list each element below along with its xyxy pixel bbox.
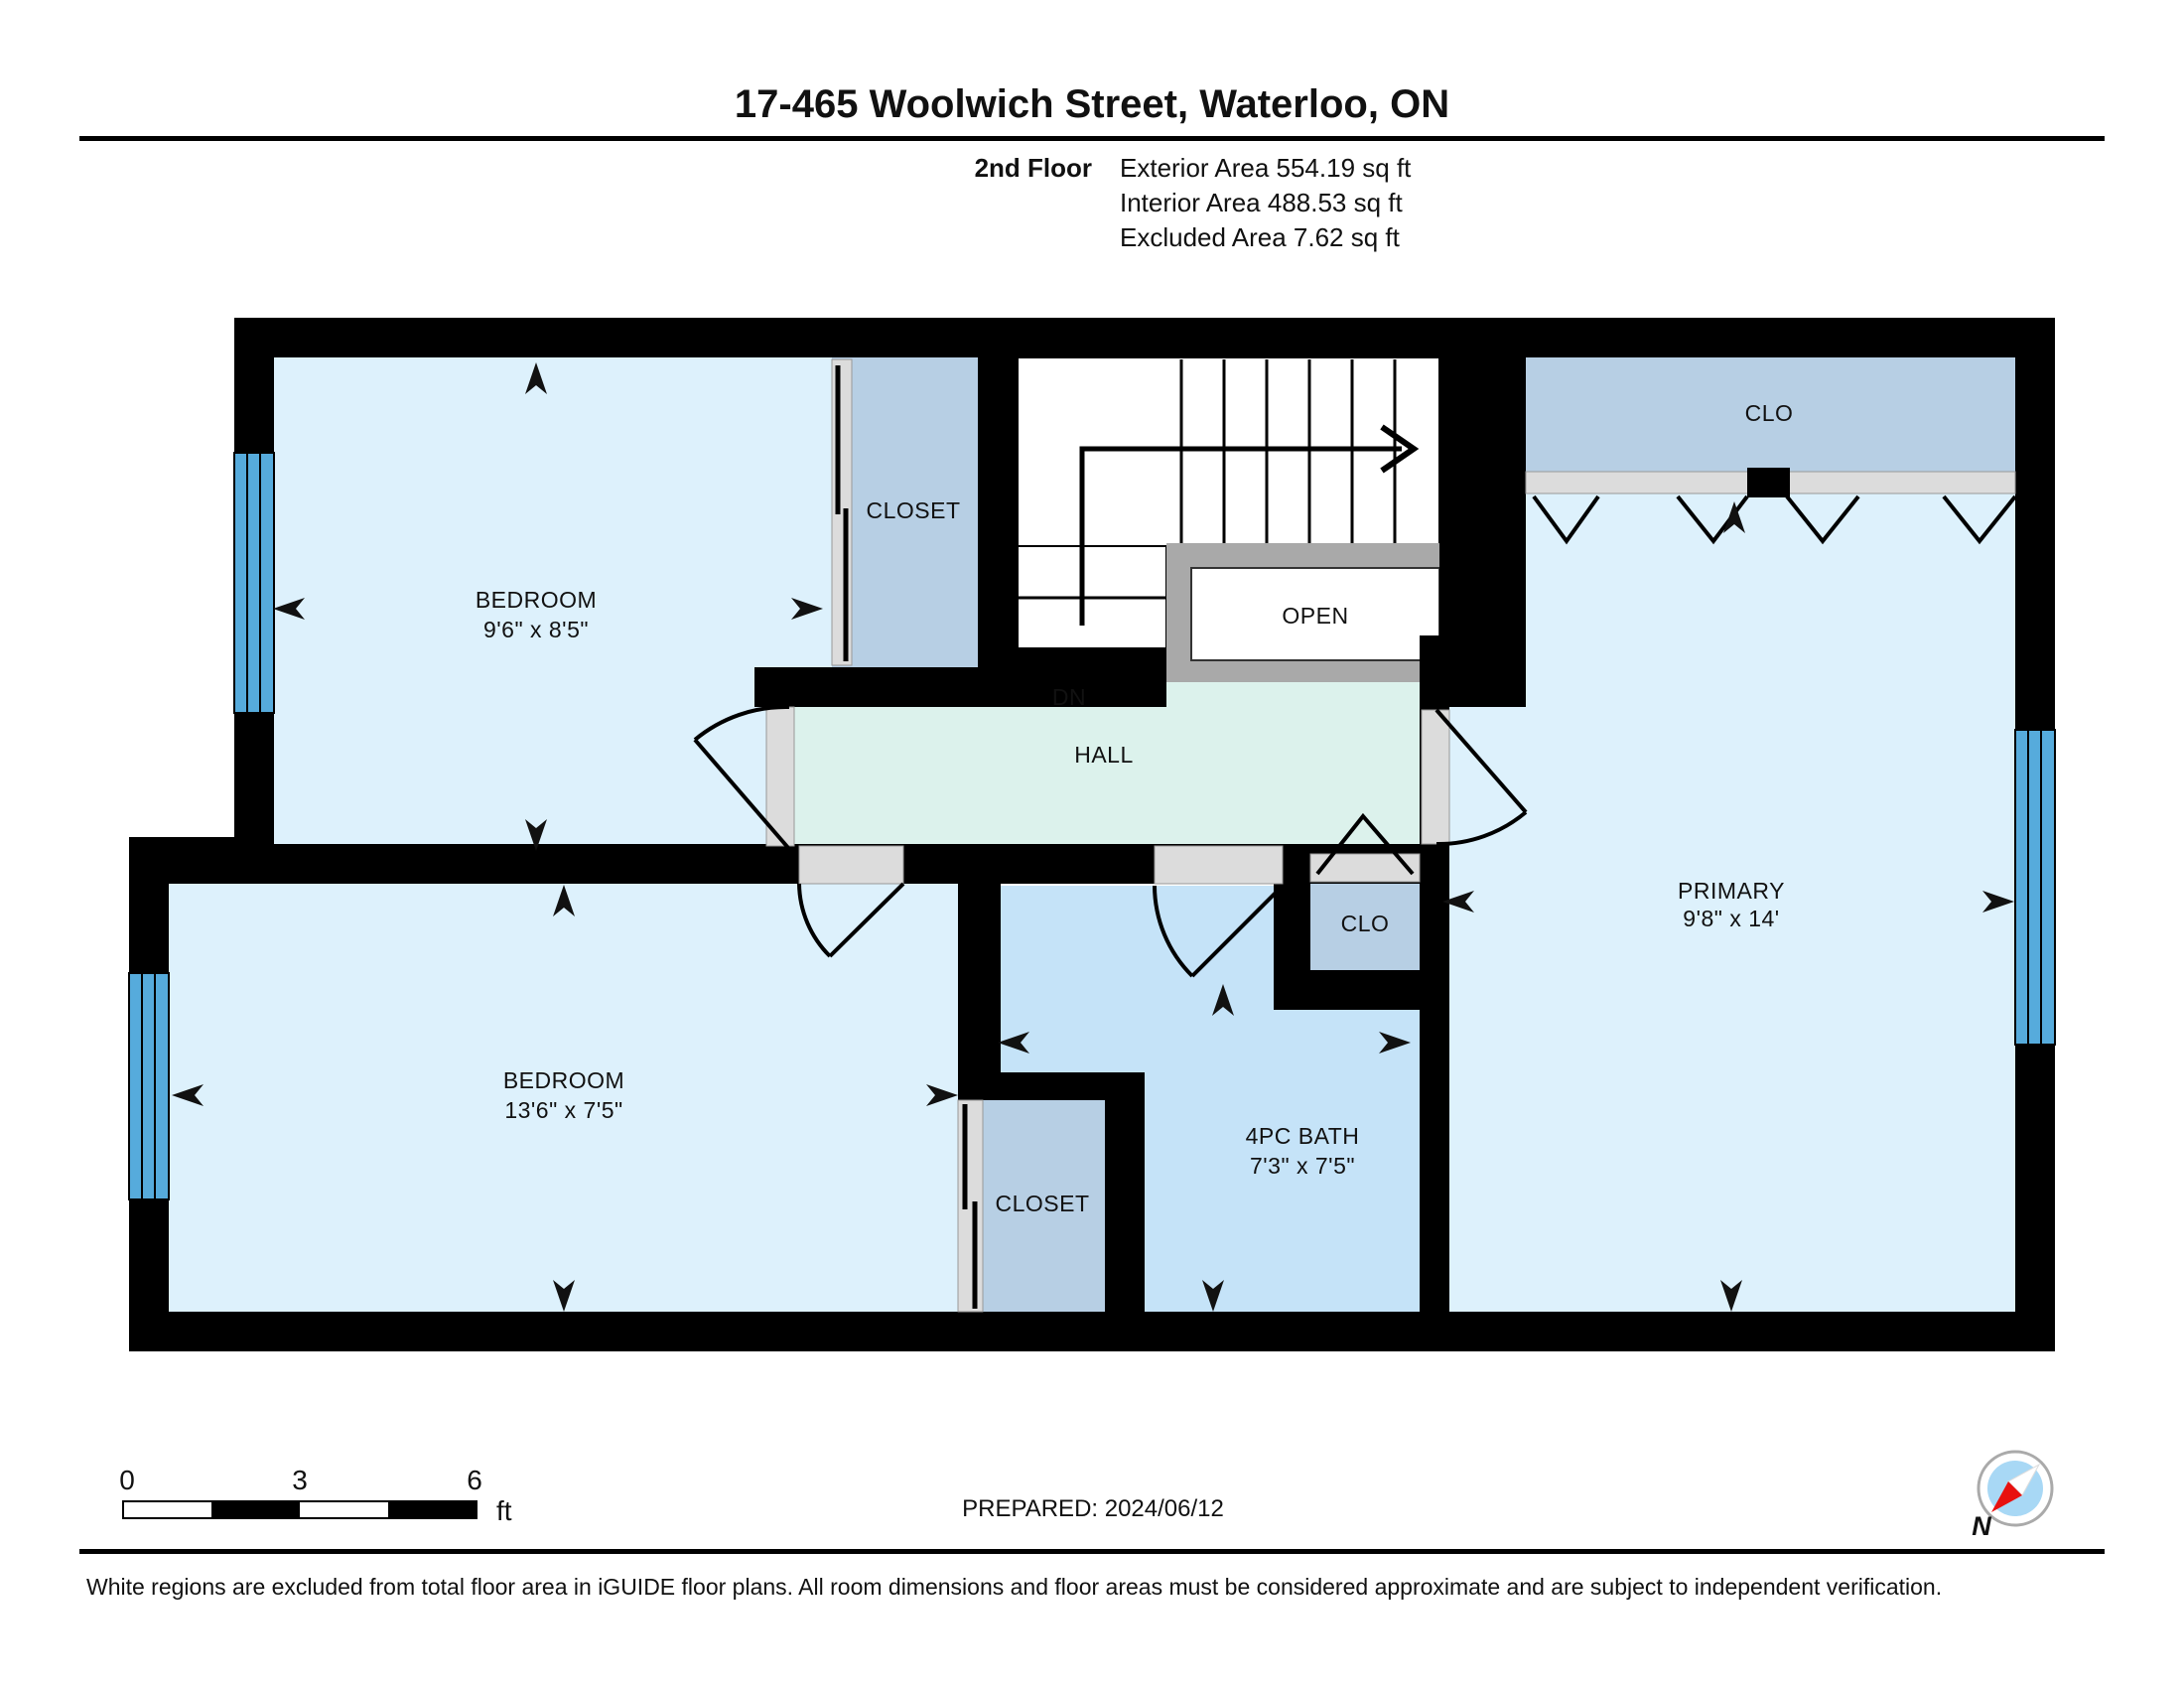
clo-divider-post — [1747, 468, 1790, 497]
closet-top-label: CLOSET — [866, 497, 960, 523]
clo-top-right-label: CLO — [1745, 400, 1794, 426]
bedroom-2-label: BEDROOM — [503, 1067, 624, 1093]
compass-north-label: N — [1972, 1511, 1991, 1541]
footer: 0 3 6 ft PREPARED: 2024/06/12 N White re… — [79, 1452, 2105, 1600]
floor-label: 2nd Floor — [975, 153, 1092, 183]
clo-small-label: CLO — [1341, 911, 1390, 936]
open-label: OPEN — [1282, 603, 1348, 629]
scale-tick-0: 0 — [119, 1465, 135, 1495]
sliding-door-closet-bottom-icon — [958, 1100, 983, 1312]
disclaimer-text: White regions are excluded from total fl… — [86, 1574, 1942, 1600]
scale-bar: 0 3 6 ft — [119, 1465, 512, 1526]
scale-bar-seg-1 — [211, 1501, 300, 1518]
primary-dims: 9'8" x 14' — [1683, 906, 1779, 931]
bath-dims: 7'3" x 7'5" — [1250, 1153, 1355, 1179]
compass-icon: N — [1972, 1452, 2052, 1541]
header: 17-465 Woolwich Street, Waterloo, ON 2nd… — [79, 82, 2105, 252]
window-primary-icon — [2015, 730, 2055, 1045]
scale-tick-6: 6 — [467, 1465, 482, 1495]
window-bedroom-2-icon — [129, 973, 169, 1199]
stairs-down-label: DN — [1052, 684, 1086, 710]
hall-label: HALL — [1074, 742, 1134, 768]
opening-bath — [1155, 846, 1283, 884]
interior-area: Interior Area 488.53 sq ft — [1120, 188, 1404, 217]
opening-primary — [1422, 710, 1449, 844]
bedroom-1-dims: 9'6" x 8'5" — [483, 617, 589, 642]
bath-label: 4PC BATH — [1246, 1123, 1360, 1149]
opening-clo-small — [1310, 854, 1420, 882]
sliding-door-closet-top-icon — [832, 359, 852, 665]
bedroom-1-label: BEDROOM — [476, 587, 597, 613]
window-bedroom-1-icon — [234, 453, 274, 713]
room-primary-upper — [1526, 493, 2015, 707]
excluded-area: Excluded Area 7.62 sq ft — [1120, 222, 1401, 252]
page-title: 17-465 Woolwich Street, Waterloo, ON — [735, 82, 1449, 126]
room-primary — [1449, 707, 2015, 1312]
header-divider — [79, 136, 2105, 141]
closet-bottom-label: CLOSET — [995, 1191, 1089, 1216]
scale-bar-seg-2 — [388, 1501, 477, 1518]
exterior-area: Exterior Area 554.19 sq ft — [1120, 153, 1412, 183]
primary-label: PRIMARY — [1678, 878, 1785, 904]
prepared-date: PREPARED: 2024/06/12 — [962, 1495, 1224, 1522]
floor-plan-page: 17-465 Woolwich Street, Waterloo, ON 2nd… — [0, 0, 2184, 1688]
bedroom-2-dims: 13'6" x 7'5" — [504, 1097, 622, 1123]
scale-tick-3: 3 — [292, 1465, 308, 1495]
footer-divider — [79, 1549, 2105, 1554]
scale-unit: ft — [496, 1495, 512, 1526]
opening-bedroom-2 — [799, 846, 903, 884]
